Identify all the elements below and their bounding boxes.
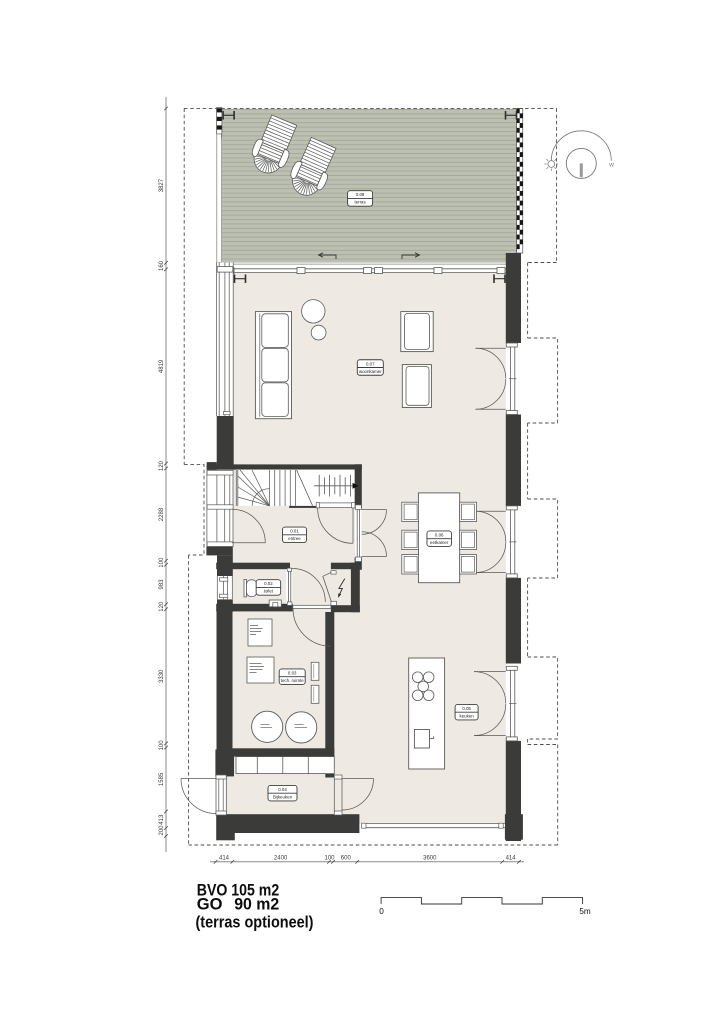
svg-text:120: 120 [159, 601, 165, 612]
svg-text:600: 600 [341, 856, 352, 862]
svg-text:2288: 2288 [159, 507, 165, 521]
svg-text:0.02: 0.02 [264, 581, 273, 586]
svg-text:413: 413 [159, 814, 165, 825]
svg-text:0.07: 0.07 [366, 361, 375, 366]
svg-text:keuken: keuken [460, 714, 475, 719]
svg-text:983: 983 [159, 579, 165, 590]
svg-text:90 m2: 90 m2 [234, 895, 279, 913]
svg-text:0.03: 0.03 [288, 671, 297, 676]
svg-text:w: w [608, 162, 614, 169]
svg-text:terras: terras [354, 200, 366, 205]
svg-text:5m: 5m [579, 907, 591, 916]
svg-text:Bijkeuken: Bijkeuken [273, 795, 293, 800]
svg-text:eetkamer: eetkamer [430, 540, 449, 545]
svg-text:4819: 4819 [159, 359, 165, 373]
svg-text:0.01: 0.01 [290, 529, 299, 534]
svg-text:0.04: 0.04 [278, 787, 287, 792]
svg-text:GO: GO [197, 895, 223, 913]
svg-text:3330: 3330 [159, 669, 165, 683]
svg-text:200: 200 [159, 825, 165, 836]
svg-text:(terras optioneel): (terras optioneel) [196, 914, 314, 932]
svg-text:1585: 1585 [159, 772, 165, 786]
svg-text:414: 414 [506, 856, 517, 862]
svg-text:entree: entree [288, 536, 301, 541]
svg-text:toilet: toilet [264, 589, 274, 594]
svg-text:100: 100 [324, 856, 335, 862]
svg-text:160: 160 [159, 260, 165, 271]
svg-text:3600: 3600 [423, 856, 437, 862]
svg-text:tech. ruimte: tech. ruimte [281, 678, 304, 683]
svg-text:0.06: 0.06 [435, 533, 444, 538]
svg-text:0.08: 0.08 [356, 192, 365, 197]
svg-text:3827: 3827 [159, 178, 165, 192]
svg-text:120: 120 [159, 460, 165, 471]
svg-text:100: 100 [159, 557, 165, 568]
svg-text:2400: 2400 [274, 856, 288, 862]
svg-text:100: 100 [159, 740, 165, 751]
svg-text:0: 0 [379, 907, 384, 916]
svg-text:414: 414 [219, 856, 230, 862]
svg-text:woonkamer: woonkamer [359, 369, 382, 374]
svg-text:0.05: 0.05 [462, 706, 471, 711]
